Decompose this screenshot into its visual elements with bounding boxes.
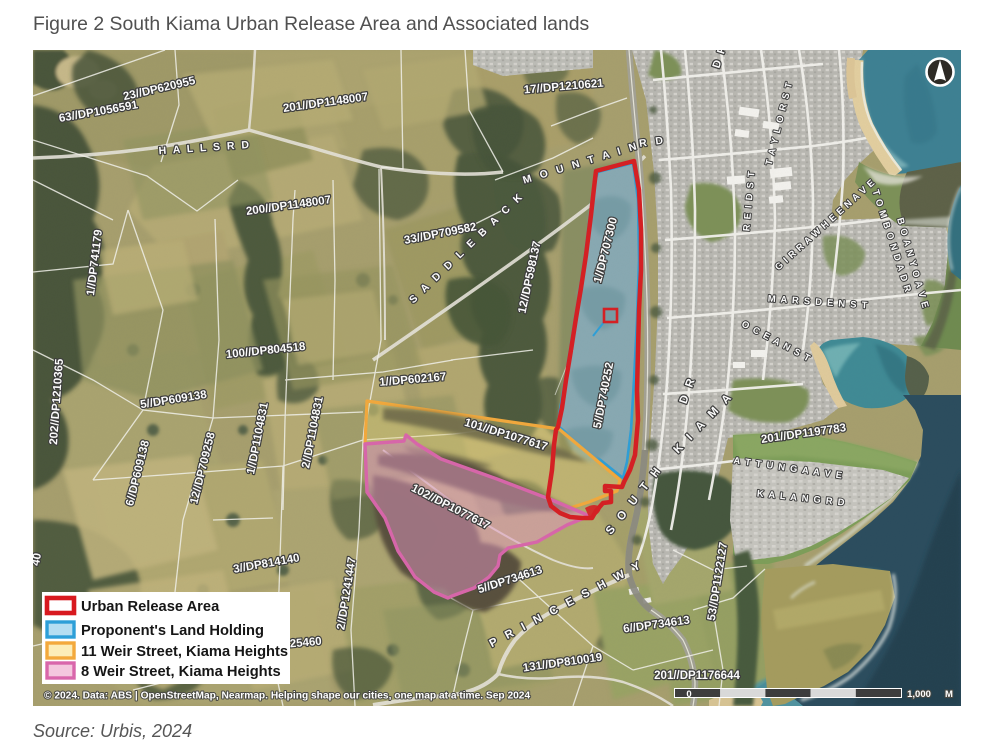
svg-text:8 Weir Street, Kiama Heights: 8 Weir Street, Kiama Heights: [81, 664, 281, 680]
svg-text:1,000: 1,000: [907, 689, 931, 700]
svg-text:0: 0: [686, 689, 691, 700]
svg-text:11 Weir Street, Kiama Heights: 11 Weir Street, Kiama Heights: [81, 644, 288, 660]
svg-text:Urban Release Area: Urban Release Area: [81, 599, 220, 615]
svg-text:© 2024. Data: ABS | OpenStreet: © 2024. Data: ABS | OpenStreetMap, Nearm…: [44, 691, 530, 702]
svg-text:Proponent's Land Holding: Proponent's Land Holding: [81, 623, 264, 639]
svg-text:M: M: [945, 689, 953, 700]
